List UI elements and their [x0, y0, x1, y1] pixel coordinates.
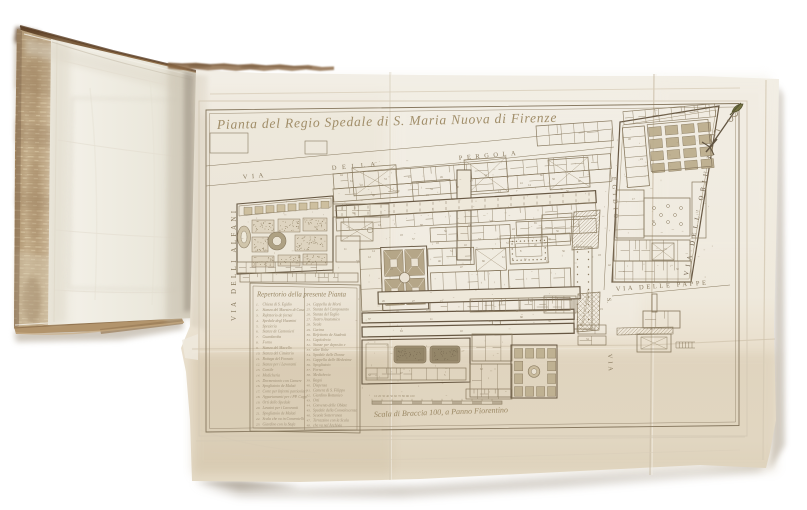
svg-text:Scala che va in Conventelli: Scala che va in Conventelli: [263, 417, 305, 421]
svg-text:Medicheria: Medicheria: [312, 373, 331, 377]
svg-text:37.: 37.: [307, 368, 312, 372]
svg-text:Stanza del Cimiterio: Stanza del Cimiterio: [263, 352, 294, 356]
svg-text:Teatro Anatomico: Teatro Anatomico: [313, 318, 340, 322]
svg-text:Guardaroba: Guardaroba: [263, 335, 282, 339]
svg-text:14.: 14.: [256, 373, 261, 377]
svg-text:Repertorio della presente Pian: Repertorio della presente Pianta: [256, 292, 347, 299]
svg-text:Stanza del Taglio: Stanza del Taglio: [313, 313, 339, 317]
svg-text:8.: 8.: [256, 341, 259, 345]
svg-text:Dispensa: Dispensa: [312, 383, 327, 387]
svg-text:21.: 21.: [256, 412, 261, 416]
svg-text:36.: 36.: [307, 363, 312, 367]
svg-text:Scala: Scala: [313, 323, 322, 327]
svg-text:12.: 12.: [256, 362, 261, 366]
svg-text:13.: 13.: [256, 368, 261, 372]
svg-text:Spedale delle Donne: Spedale delle Donne: [313, 353, 345, 357]
svg-text:27.: 27.: [307, 318, 312, 322]
svg-text:Cortile: Cortile: [263, 368, 274, 372]
svg-text:Stanze per deposito e: Stanze per deposito e: [313, 343, 346, 347]
svg-text:Orti: Orti: [313, 399, 319, 403]
svg-text:Medicheria: Medicheria: [262, 373, 281, 377]
svg-text:Chiesa di S. Egidio: Chiesa di S. Egidio: [263, 303, 292, 307]
svg-text:25.: 25.: [307, 308, 312, 312]
svg-text:18.: 18.: [256, 395, 261, 399]
svg-text:5.: 5.: [256, 324, 259, 328]
svg-text:17.: 17.: [256, 390, 261, 394]
svg-text:29.: 29.: [307, 328, 312, 332]
svg-text:42.: 42.: [307, 393, 312, 397]
svg-text:Capitoleria: Capitoleria: [313, 338, 331, 342]
svg-text:4.: 4.: [256, 319, 259, 323]
svg-text:11.: 11.: [256, 357, 260, 361]
svg-text:Stanze per i Lavoranti: Stanze per i Lavoranti: [263, 362, 297, 366]
svg-text:Stanza del Maestro di Casa: Stanza del Maestro di Casa: [263, 308, 305, 312]
svg-text:Corte per Infermi particolari: Corte per Infermi particolari: [263, 390, 307, 394]
svg-text:Stanza del Camposanto: Stanza del Camposanto: [313, 308, 349, 312]
svg-text:40.: 40.: [307, 383, 312, 387]
svg-text:22.: 22.: [256, 417, 261, 421]
svg-text:47.: 47.: [307, 419, 312, 423]
svg-text:28.: 28.: [307, 323, 312, 327]
svg-text:Bagni: Bagni: [313, 378, 322, 382]
svg-text:Stanze de Cantonieri: Stanze de Cantonieri: [263, 330, 295, 334]
svg-text:7.: 7.: [256, 335, 259, 339]
svg-text:Refettorio de Studenti: Refettorio de Studenti: [312, 333, 346, 337]
svg-text:Bottega del Fornaio: Bottega del Fornaio: [263, 357, 294, 361]
svg-text:Spedale della Convalescenza: Spedale della Convalescenza: [313, 409, 357, 413]
svg-text:VIA: VIA: [606, 354, 614, 374]
svg-text:che va nel Archivio: che va nel Archivio: [313, 424, 342, 428]
svg-text:9.: 9.: [256, 346, 259, 350]
svg-text:Forno: Forno: [262, 341, 273, 345]
svg-text:Spezieria: Spezieria: [263, 324, 277, 328]
svg-text:Appartamenti per i PP. Capp.: Appartamenti per i PP. Capp.: [262, 395, 308, 399]
svg-text:38.: 38.: [307, 373, 312, 377]
svg-text:39.: 39.: [307, 378, 312, 382]
svg-text:45.: 45.: [307, 409, 312, 413]
svg-text:Spedale degl Huomini: Spedale degl Huomini: [263, 319, 297, 323]
svg-text:Orti dello Spedale: Orti dello Spedale: [263, 401, 291, 405]
svg-text:Dormentorio con Camere: Dormentorio con Camere: [262, 379, 302, 383]
svg-text:31.: 31.: [307, 338, 312, 342]
svg-text:Cappella de Morti: Cappella de Morti: [313, 303, 341, 307]
svg-text:43.: 43.: [307, 399, 312, 403]
svg-text:26.: 26.: [307, 313, 312, 317]
svg-text:Giardino Bottanico: Giardino Bottanico: [313, 393, 343, 397]
svg-text:41.: 41.: [307, 388, 312, 392]
svg-text:Giardino con la Stufa: Giardino con la Stufa: [263, 422, 296, 426]
svg-text:10 20 30 40 50 60: 10 20 30 40 50 60 70 80 90 100: [374, 394, 415, 398]
svg-text:10.: 10.: [256, 352, 261, 356]
svg-text:44.: 44.: [307, 404, 312, 408]
svg-text:Convento delle Oblate: Convento delle Oblate: [313, 404, 347, 408]
svg-text:Spogliatoio de Malati: Spogliatoio de Malati: [263, 412, 296, 416]
svg-text:Cucina: Cucina: [313, 328, 324, 332]
svg-text:32.: 32.: [307, 343, 312, 347]
svg-text:Scuola Sotterranea: Scuola Sotterranea: [313, 414, 342, 418]
svg-text:19.: 19.: [256, 401, 261, 405]
svg-text:Lavatoi per i Lavoranti: Lavatoi per i Lavoranti: [262, 406, 299, 410]
svg-text:Spogliatoio de Malati: Spogliatoio de Malati: [263, 384, 296, 388]
svg-text:15.: 15.: [256, 379, 261, 383]
svg-text:Spogliatoio: Spogliatoio: [313, 363, 331, 367]
svg-text:Stanza del Macello: Stanza del Macello: [263, 346, 292, 350]
svg-text:S.: S.: [605, 298, 612, 304]
svg-text:6.: 6.: [256, 330, 259, 334]
svg-text:16.: 16.: [256, 384, 261, 388]
svg-text:46.: 46.: [307, 414, 312, 418]
svg-text:3.: 3.: [256, 313, 259, 317]
svg-text:23.: 23.: [256, 422, 261, 426]
svg-text:1.: 1.: [256, 303, 259, 307]
svg-text:altre Robe: altre Robe: [313, 348, 329, 352]
svg-text:30.: 30.: [307, 333, 312, 337]
svg-text:Forno: Forno: [312, 368, 323, 372]
svg-text:35.: 35.: [307, 358, 312, 362]
svg-text:20.: 20.: [256, 406, 261, 410]
svg-text:48.: 48.: [307, 424, 312, 428]
svg-text:2.: 2.: [256, 308, 259, 312]
svg-text:33.: 33.: [307, 348, 312, 352]
svg-text:Camera di S. Filippo: Camera di S. Filippo: [313, 388, 345, 392]
svg-text:Terrazzino con la Scala: Terrazzino con la Scala: [313, 419, 349, 423]
svg-text:24.: 24.: [307, 303, 312, 307]
svg-text:Refettorio de fornai: Refettorio de fornai: [262, 313, 293, 317]
svg-text:34.: 34.: [307, 353, 312, 357]
svg-text:Cappella delle Medesime: Cappella delle Medesime: [313, 358, 352, 362]
